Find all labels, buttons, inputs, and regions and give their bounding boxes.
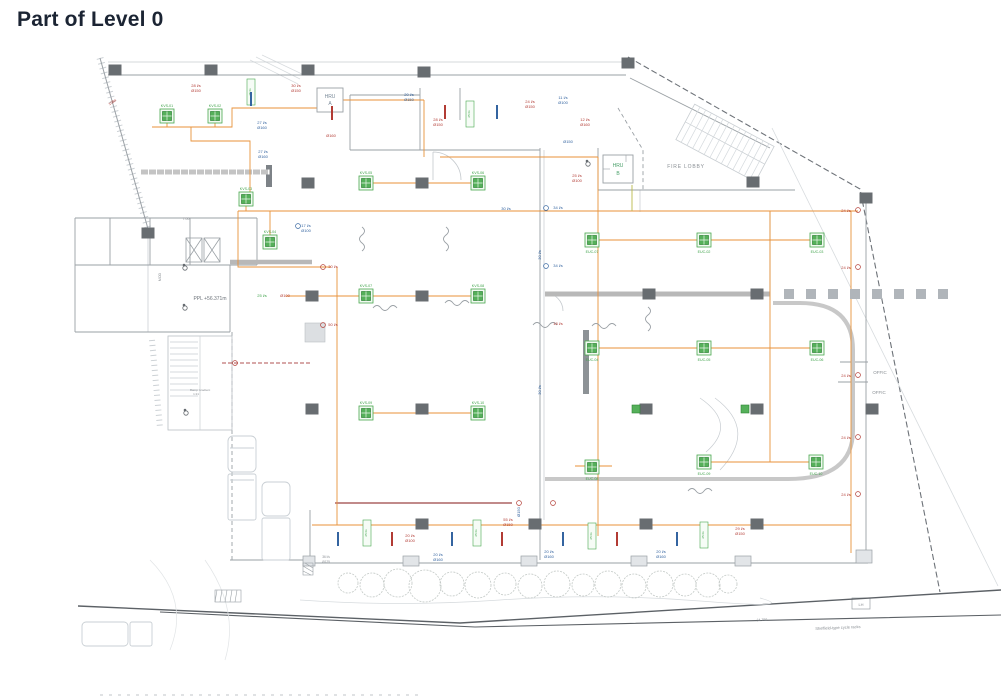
vent-unit: KVS-08: [471, 284, 485, 303]
vent-symbol-red: [856, 373, 861, 378]
vent-unit: EUC-06: [810, 341, 824, 362]
vent-unit: EUC-08: [585, 460, 599, 481]
column: [751, 519, 764, 530]
grille-bar-blue: [562, 532, 564, 546]
tree: [674, 574, 696, 596]
flex-connector: [592, 324, 616, 329]
grille-block: [828, 289, 838, 299]
vent-unit-label: KVS-02: [209, 104, 221, 108]
stair-tread: [733, 134, 752, 169]
vent-unit: EUC-09: [697, 455, 711, 476]
vent-symbol-red: [551, 501, 556, 506]
flow-annotation: Ø160: [580, 122, 591, 127]
valve-label: 25 l/s: [466, 101, 474, 127]
column: [622, 58, 635, 69]
valve-label: 25 l/s: [473, 520, 481, 546]
vent-unit: EUC-03: [810, 233, 824, 254]
vent-unit-label: EUC-02: [698, 250, 711, 254]
stair-tread: [744, 141, 763, 176]
vent-unit: KVS-06: [471, 171, 485, 190]
column: [860, 193, 873, 204]
column: [306, 404, 319, 415]
vent-unit: EUC-04: [585, 341, 599, 362]
tree: [494, 573, 516, 595]
vent-unit-label: EUC-05: [698, 358, 711, 362]
grille-bar-blue: [337, 532, 339, 546]
vent-unit: KVS-09: [359, 401, 373, 420]
vent-unit: KVS-10: [471, 401, 485, 420]
flow-annotation: 30 l/s: [537, 385, 542, 395]
grille-bar-blue: [250, 92, 252, 106]
column: [302, 178, 315, 189]
column: [109, 65, 122, 76]
room-label: HRU: [325, 94, 336, 100]
flow-annotation: 24 l/s: [841, 208, 851, 213]
room-label: HRU: [613, 163, 624, 169]
flow-annotation: Ø160: [544, 554, 555, 559]
tree: [518, 574, 542, 598]
vent-unit-label: KVS-03: [240, 187, 252, 191]
vent-unit-label: KVS-09: [360, 401, 372, 405]
vent-unit: KVS-02: [208, 104, 222, 123]
grille-bar-red: [444, 105, 446, 119]
room-label: 34.750: [756, 618, 767, 623]
tree: [544, 571, 570, 597]
vent-unit: EUC-05: [697, 341, 711, 362]
flow-annotation: Ø150: [525, 104, 536, 109]
tree: [360, 573, 384, 597]
site-boundary: [100, 55, 998, 592]
tree: [595, 571, 621, 597]
flow-annotation: 36 l/s: [322, 555, 330, 559]
column: [306, 291, 319, 302]
flow-annotation: Ø100: [572, 178, 583, 183]
tree: [622, 574, 646, 598]
ducts-orange: [152, 100, 858, 553]
grille-bar-red: [616, 532, 618, 546]
column: [302, 65, 315, 76]
grille-bar-blue: [496, 105, 498, 119]
flow-annotation: Ø150: [291, 88, 302, 93]
hru-boxes: [317, 88, 633, 183]
flex-connector: [688, 489, 712, 494]
vent-unit: KVS-04: [263, 230, 277, 249]
flow-annotation: 24 l/s: [841, 492, 851, 497]
valve-label-text: 25 l/s: [467, 110, 471, 118]
vent-unit-label: EUC-07: [586, 250, 599, 254]
column: [205, 65, 218, 76]
vent-unit-label: EUC-06: [811, 358, 824, 362]
flex-connector: [360, 227, 365, 251]
tree: [409, 570, 441, 602]
vent-unit-label: KVS-05: [360, 171, 372, 175]
grille-bar-red: [331, 106, 333, 120]
column: [751, 404, 764, 415]
room-label: Sheffield-type cycle racks: [815, 624, 860, 631]
valve-label: 25 l/s: [588, 523, 596, 549]
column: [640, 519, 653, 530]
flow-annotation: 25 l/s: [257, 293, 267, 298]
flow-annotation: Ø160: [257, 125, 268, 130]
stair-tread: [721, 128, 740, 163]
vent-unit-small: [741, 405, 749, 413]
flow-annotation: Ø100: [301, 228, 312, 233]
grille-bar-red: [501, 532, 503, 546]
flow-annotation: Ø160: [258, 154, 269, 159]
tree: [572, 574, 594, 596]
flow-annotation: Ø160: [433, 557, 444, 562]
tree: [696, 573, 720, 597]
vent-symbol-red: [856, 265, 861, 270]
vent-unit-label: KVS-07: [360, 284, 372, 288]
valve-label-text: 25 l/s: [701, 531, 705, 539]
road-and-landscape: [78, 560, 1001, 695]
vent-unit: KVS-07: [359, 284, 373, 303]
room-label: OFFIC: [873, 370, 887, 375]
room-label: PPL +56.371m: [193, 296, 226, 302]
vent-unit: KVS-05: [359, 171, 373, 190]
stair-tread: [704, 119, 723, 154]
vent-unit-label: EUC-09: [698, 472, 711, 476]
column: [866, 404, 879, 415]
annotation-texts-layer: HRUAHRUBFIRE LOBBYOFFICOFFICPPL +56.371m…: [108, 83, 888, 631]
tree: [719, 575, 737, 593]
grille-bar-blue: [451, 532, 453, 546]
vent-symbol-red: [856, 435, 861, 440]
vent-unit: KVS-01: [160, 104, 174, 123]
grille-bar-blue: [676, 532, 678, 546]
vent-unit-label: KVS-01: [161, 104, 173, 108]
vent-symbol-blue: [296, 224, 301, 229]
valve-label-text: 25 l/s: [474, 529, 478, 537]
stair-tread: [716, 125, 735, 160]
vent-unit-label: KVS-04: [264, 230, 276, 234]
vent-unit: EUC-07: [585, 233, 599, 254]
flex-connector: [445, 301, 469, 306]
column: [751, 289, 764, 300]
floor-plan-svg: KVS-01KVS-02KVS-03KVS-04KVS-05KVS-06KVS-…: [0, 0, 1001, 700]
stair-tread: [710, 122, 729, 157]
vent-unit-label: EUC-08: [586, 477, 599, 481]
vent-symbol-red: [856, 492, 861, 497]
column: [416, 291, 429, 302]
flow-annotation: 24 l/s: [841, 265, 851, 270]
grille-block: [894, 289, 904, 299]
flow-annotation: Ø125: [322, 560, 330, 564]
vent-unit-label: KVS-08: [472, 284, 484, 288]
grille-block: [850, 289, 860, 299]
flow-annotation: 30 l/s: [328, 264, 338, 269]
flow-annotation: 10Ba: [108, 98, 117, 106]
room-label: 1:21: [193, 392, 199, 396]
vent-unit-label: EUC-04: [586, 358, 599, 362]
column: [416, 178, 429, 189]
grille-bar-red: [391, 532, 393, 546]
vent-unit: EUC-02: [697, 233, 711, 254]
columns-layer: [109, 58, 879, 530]
stair-tread: [698, 116, 717, 151]
grille-block: [806, 289, 816, 299]
tree: [647, 571, 673, 597]
flow-annotation: Ø150: [404, 97, 415, 102]
flow-annotation: 50 l/s: [328, 322, 338, 327]
flow-annotation: Ø100: [558, 100, 569, 105]
column: [643, 289, 656, 300]
column: [529, 519, 542, 530]
column: [640, 404, 653, 415]
column: [142, 228, 155, 239]
tree: [440, 572, 464, 596]
valve-label: 25 l/s: [700, 522, 708, 548]
vent-unit: KVS-03: [239, 187, 253, 206]
flow-annotation: Ø160: [656, 554, 667, 559]
flow-annotation: 24 l/s: [841, 435, 851, 440]
stair-tread: [727, 131, 746, 166]
flow-annotation: Ø150: [503, 522, 514, 527]
flow-annotation: Ø160: [326, 133, 337, 138]
flow-annotation: 18 l/s: [553, 321, 563, 326]
flow-annotation: 30 l/s: [501, 206, 511, 211]
symbols-layer: [233, 206, 861, 506]
drawing-sheet: Part of Level 0: [0, 0, 1001, 700]
room-label: FIRE LOBBY: [667, 164, 704, 170]
flow-annotation: Ø100: [280, 293, 291, 298]
flow-annotation: Ø150: [563, 139, 574, 144]
column: [747, 177, 760, 188]
column: [418, 67, 431, 78]
room-label: 7.00: [183, 217, 190, 221]
tree: [465, 572, 491, 598]
grille-block: [938, 289, 948, 299]
flow-annotation: Ø100: [405, 538, 416, 543]
flex-connector: [444, 227, 449, 251]
tree: [384, 569, 412, 597]
vent-unit-label: EUC-03: [811, 250, 824, 254]
grille-block: [916, 289, 926, 299]
grille-block: [784, 289, 794, 299]
flow-annotation: 34 l/s: [553, 205, 563, 210]
stair-tread: [693, 113, 712, 148]
flow-annotation: Ø150: [191, 88, 202, 93]
column: [416, 519, 429, 530]
flex-connectors-layer: [360, 227, 713, 494]
vent-unit-label: EUC-10: [810, 472, 823, 476]
valve-label-text: 25 l/s: [364, 529, 368, 537]
room-label: OFFIC: [872, 390, 886, 395]
vent-unit: EUC-10: [809, 455, 823, 476]
vent-unit-small: [632, 405, 640, 413]
flex-connector: [646, 307, 651, 331]
vent-unit-label: KVS-06: [472, 171, 484, 175]
valve-label-text: 25 l/s: [589, 532, 593, 540]
vent-symbol-red: [517, 501, 522, 506]
flow-annotation: 34 l/s: [553, 263, 563, 268]
trees-layer: [338, 569, 737, 602]
stair-tread: [687, 110, 706, 145]
stair-tread: [739, 138, 758, 173]
vent-symbol-red: [856, 208, 861, 213]
flow-annotation: Ø150: [433, 122, 444, 127]
room-label: MOD: [158, 272, 162, 281]
grille-block: [872, 289, 882, 299]
flow-annotation: Ø150: [516, 506, 521, 517]
flow-annotation: 30 l/s: [537, 250, 542, 260]
flex-connector: [373, 306, 397, 311]
valve-label: 25 l/s: [363, 520, 371, 546]
vent-unit-label: KVS-10: [472, 401, 484, 405]
room-label: LH: [858, 602, 863, 607]
tree: [338, 573, 358, 593]
flow-annotation: Ø150: [735, 531, 746, 536]
flow-annotation: 24 l/s: [841, 373, 851, 378]
column: [416, 404, 429, 415]
